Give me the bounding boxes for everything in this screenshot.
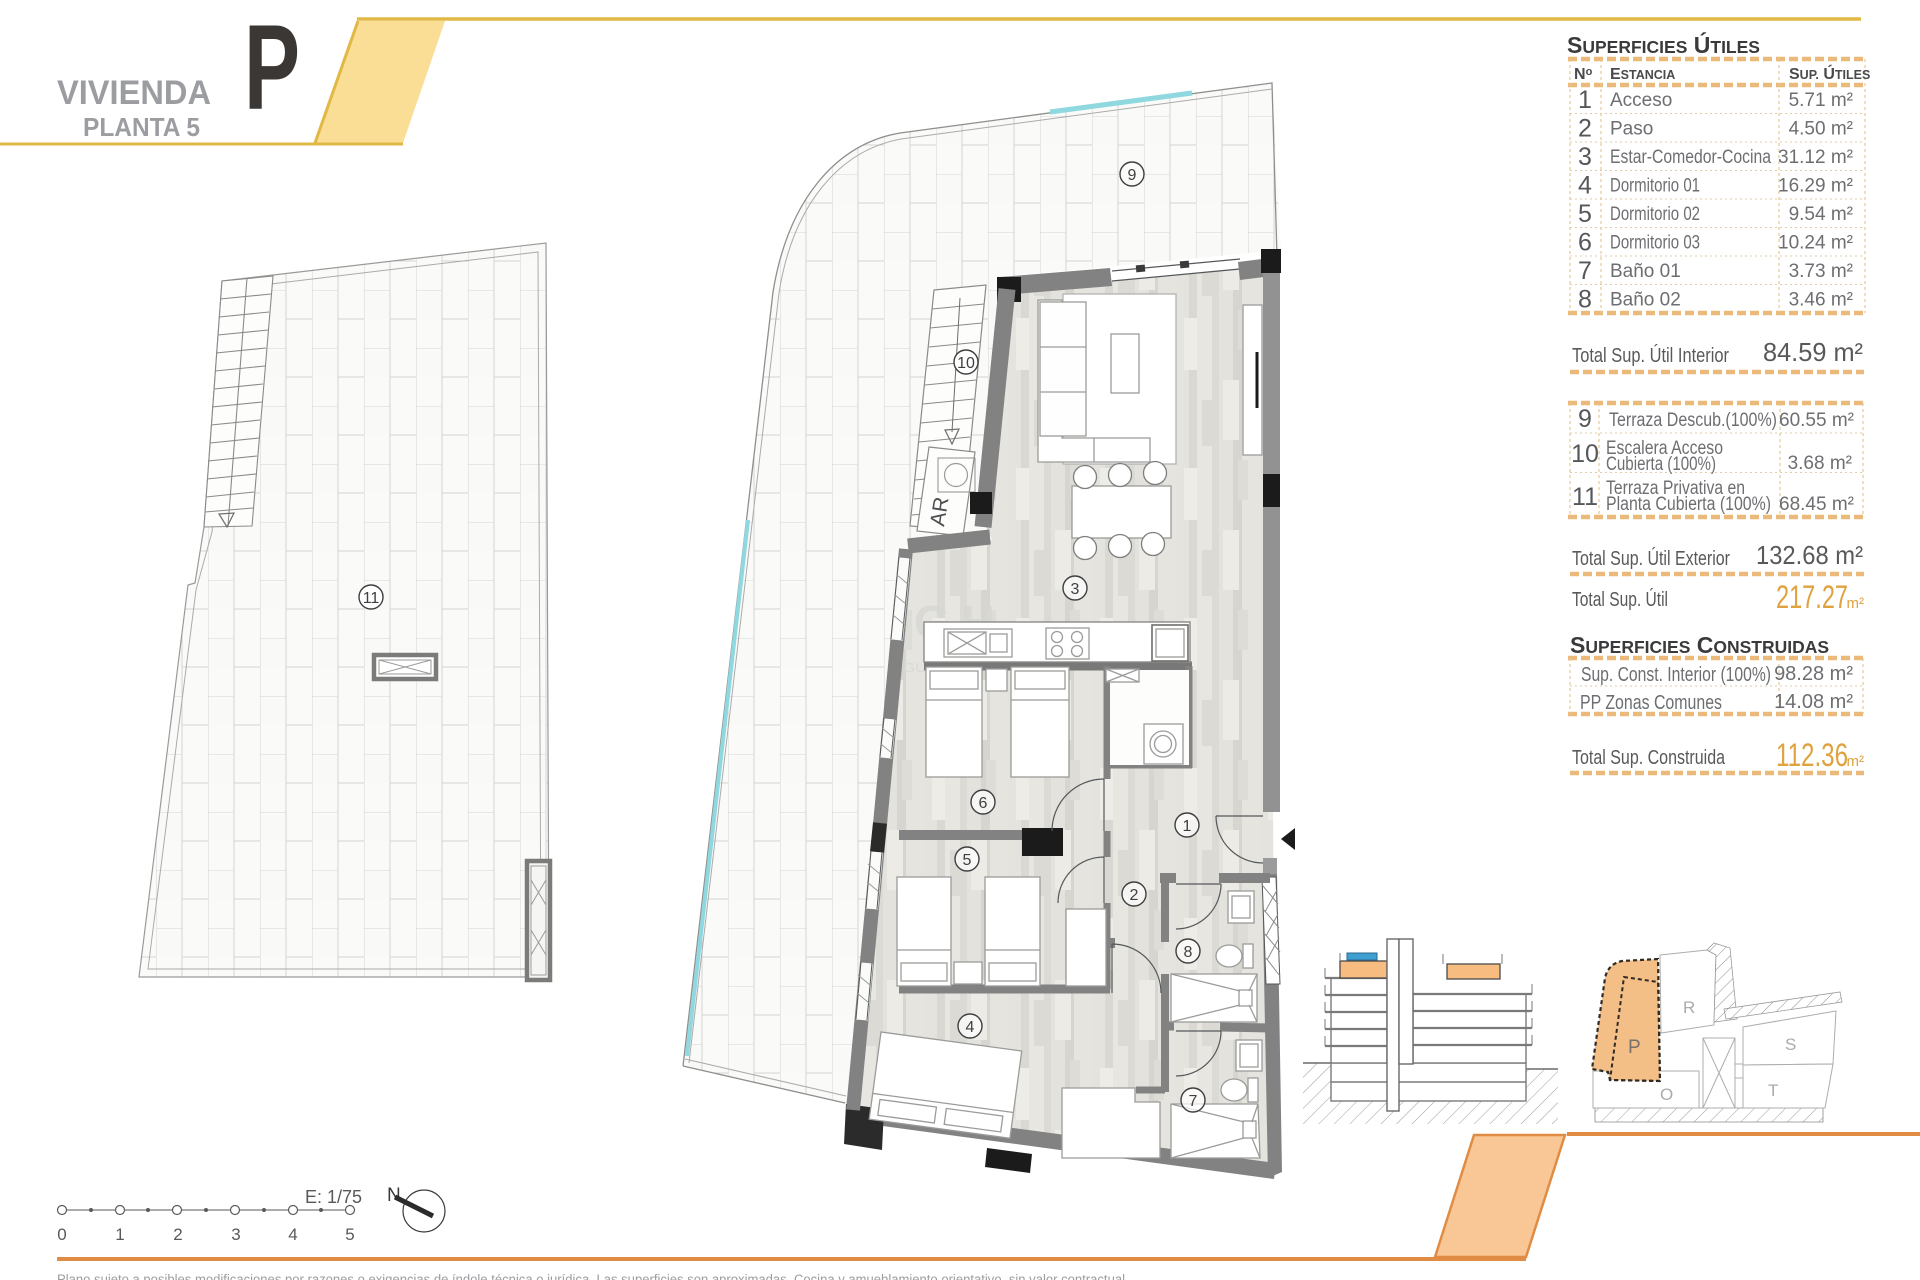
svg-text:R: R <box>1683 998 1695 1017</box>
svg-text:VIVIENDA: VIVIENDA <box>57 74 211 112</box>
svg-text:5: 5 <box>1578 200 1592 228</box>
svg-text:6: 6 <box>979 795 988 812</box>
svg-text:1: 1 <box>115 1225 124 1244</box>
svg-text:9.54 m²: 9.54 m² <box>1789 204 1853 225</box>
svg-text:5: 5 <box>345 1225 354 1244</box>
svg-text:4: 4 <box>966 1019 975 1036</box>
svg-text:PP Zonas Comunes: PP Zonas Comunes <box>1580 692 1722 714</box>
svg-text:16.29 m²: 16.29 m² <box>1778 176 1853 197</box>
svg-text:10: 10 <box>957 355 975 372</box>
svg-text:2: 2 <box>1130 887 1139 904</box>
svg-text:Planta Cubierta (100%): Planta Cubierta (100%) <box>1606 494 1771 515</box>
svg-text:112.36: 112.36 <box>1776 737 1848 773</box>
svg-text:8: 8 <box>1184 944 1193 961</box>
svg-text:Acceso: Acceso <box>1610 90 1672 111</box>
svg-text:1: 1 <box>1183 818 1192 835</box>
svg-text:Dormitorio 02: Dormitorio 02 <box>1610 204 1700 225</box>
svg-text:98.28 m²: 98.28 m² <box>1774 663 1853 685</box>
svg-text:7: 7 <box>1578 257 1592 285</box>
svg-text:PLANTA 5: PLANTA 5 <box>83 112 200 142</box>
svg-text:217.27: 217.27 <box>1776 579 1848 615</box>
svg-text:10.24 m²: 10.24 m² <box>1778 233 1853 254</box>
svg-text:T: T <box>1768 1081 1778 1100</box>
svg-text:P: P <box>244 0 300 135</box>
svg-text:Baño 02: Baño 02 <box>1610 290 1681 311</box>
svg-text:9: 9 <box>1578 405 1592 433</box>
svg-text:31.12 m²: 31.12 m² <box>1778 147 1853 168</box>
svg-text:2: 2 <box>173 1225 182 1244</box>
svg-text:Total Sup. Útil Exterior: Total Sup. Útil Exterior <box>1572 547 1730 570</box>
svg-text:N: N <box>387 1185 401 1206</box>
svg-text:3: 3 <box>1578 143 1592 171</box>
svg-text:E: 1/75: E: 1/75 <box>305 1187 362 1207</box>
svg-text:Dormitorio 01: Dormitorio 01 <box>1610 176 1700 197</box>
svg-text:3.68 m²: 3.68 m² <box>1788 453 1852 474</box>
svg-text:2: 2 <box>1578 115 1592 143</box>
svg-text:132.68 m²: 132.68 m² <box>1756 540 1863 570</box>
svg-text:14.08 m²: 14.08 m² <box>1774 691 1853 713</box>
svg-text:Sup. Const. Interior (100%): Sup. Const. Interior (100%) <box>1581 664 1771 686</box>
svg-text:84.59 m²: 84.59 m² <box>1763 337 1863 367</box>
svg-text:68.45 m²: 68.45 m² <box>1779 494 1854 515</box>
svg-text:0: 0 <box>57 1225 66 1244</box>
svg-text:Total Sup. Útil Interior: Total Sup. Útil Interior <box>1572 344 1729 367</box>
svg-text:Estar-Comedor-Cocina: Estar-Comedor-Cocina <box>1610 147 1771 168</box>
svg-text:4: 4 <box>1578 172 1592 200</box>
svg-text:m²: m² <box>1847 753 1865 770</box>
svg-text:11: 11 <box>363 590 380 607</box>
svg-text:Baño 01: Baño 01 <box>1610 261 1681 282</box>
svg-text:8: 8 <box>1578 286 1592 314</box>
svg-text:AR: AR <box>926 495 953 527</box>
svg-text:Total Sup. Construida: Total Sup. Construida <box>1572 747 1726 769</box>
svg-text:9: 9 <box>1128 167 1137 184</box>
svg-text:3.73 m²: 3.73 m² <box>1789 261 1853 282</box>
svg-text:3: 3 <box>1071 581 1080 598</box>
svg-text:ESTANCIA: ESTANCIA <box>1610 66 1675 83</box>
svg-text:m²: m² <box>1847 595 1865 612</box>
svg-text:O: O <box>1660 1085 1673 1104</box>
svg-text:4.50 m²: 4.50 m² <box>1789 119 1853 140</box>
svg-text:Terraza Descub.(100%): Terraza Descub.(100%) <box>1609 410 1777 431</box>
svg-text:Dormitorio 03: Dormitorio 03 <box>1610 233 1700 254</box>
svg-text:10: 10 <box>1571 440 1599 468</box>
svg-text:3.46 m²: 3.46 m² <box>1789 290 1853 311</box>
svg-text:7: 7 <box>1189 1093 1198 1110</box>
svg-text:5: 5 <box>963 852 972 869</box>
svg-text:4: 4 <box>288 1225 297 1244</box>
svg-text:11: 11 <box>1572 483 1598 511</box>
svg-text:5.71 m²: 5.71 m² <box>1789 90 1853 111</box>
svg-text:1: 1 <box>1578 86 1592 114</box>
svg-text:P: P <box>1628 1037 1641 1058</box>
svg-text:6: 6 <box>1578 229 1592 257</box>
svg-text:3: 3 <box>231 1225 240 1244</box>
svg-text:60.55 m²: 60.55 m² <box>1779 410 1854 431</box>
svg-text:Total Sup. Útil: Total Sup. Útil <box>1572 588 1668 611</box>
svg-text:Plano sujeto a posibles modifi: Plano sujeto a posibles modificaciones p… <box>57 1272 1125 1280</box>
svg-text:Paso: Paso <box>1610 119 1653 140</box>
svg-text:S: S <box>1785 1035 1796 1054</box>
svg-text:Cubierta (100%): Cubierta (100%) <box>1606 454 1716 475</box>
